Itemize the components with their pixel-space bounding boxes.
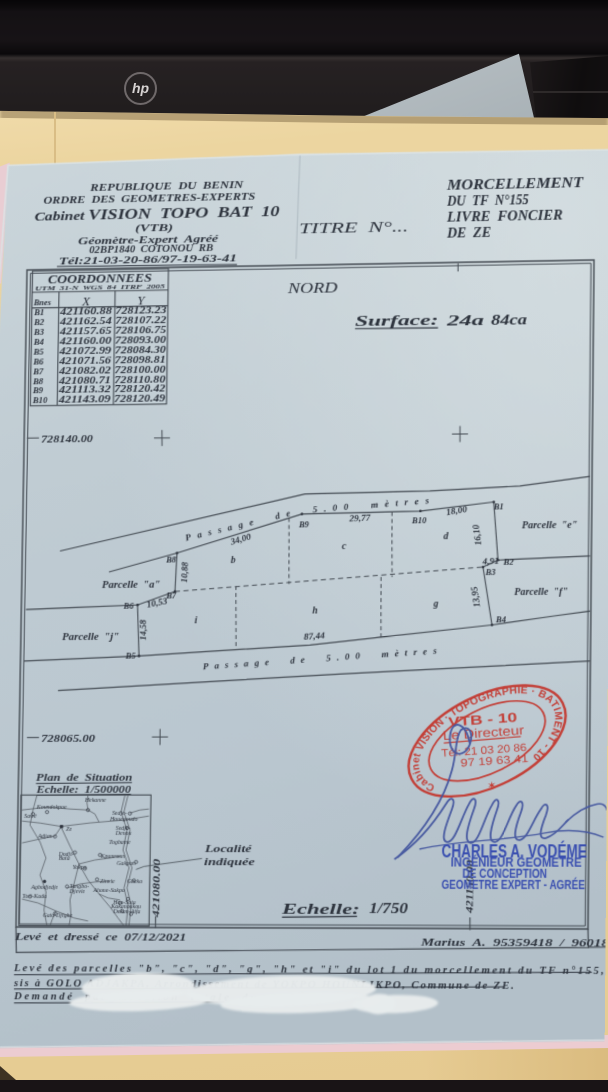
svg-text:Zinvie: Zinvie: [100, 879, 115, 885]
svg-text:B9: B9: [298, 520, 309, 529]
svg-text:indiquée: indiquée: [204, 856, 255, 868]
svg-text:B1: B1: [33, 307, 44, 317]
svg-text:DE ZE: DE ZE: [446, 225, 491, 242]
svg-text:Adjan: Adjan: [37, 833, 52, 839]
svg-text:B6: B6: [32, 356, 44, 366]
svg-text:Agbodjedje: Agbodjedje: [30, 885, 58, 891]
svg-text:Surface:: Surface:: [355, 313, 439, 330]
svg-text:B3: B3: [33, 327, 45, 337]
svg-text:4,91: 4,91: [481, 555, 499, 566]
svg-text:728120.49: 728120.49: [114, 394, 166, 405]
svg-text:Houegoudo: Houegoudo: [109, 816, 138, 822]
svg-text:B8: B8: [32, 376, 44, 386]
svg-text:c: c: [342, 542, 346, 552]
svg-text:B5: B5: [32, 346, 44, 356]
svg-text:10,88: 10,88: [179, 561, 190, 582]
svg-text:Bnes: Bnes: [33, 298, 51, 307]
svg-text:Echelle:: Echelle:: [280, 902, 359, 918]
svg-text:Parcelle "e": Parcelle "e": [522, 520, 578, 531]
svg-text:g: g: [432, 600, 438, 610]
svg-text:Gato-Djigbe: Gato-Djigbe: [43, 913, 73, 919]
svg-text:B10: B10: [411, 516, 426, 525]
svg-text:B1: B1: [493, 502, 504, 511]
svg-text:84ca: 84ca: [491, 313, 527, 329]
svg-text:728140.00: 728140.00: [41, 434, 93, 446]
svg-text:B2: B2: [502, 557, 513, 566]
svg-text:B7: B7: [32, 366, 44, 376]
svg-text:Parcelle "f": Parcelle "f": [514, 587, 568, 598]
svg-text:h: h: [312, 607, 318, 617]
svg-text:24a: 24a: [445, 314, 484, 330]
svg-text:421080.00: 421080.00: [151, 859, 163, 919]
svg-text:Ze: Ze: [66, 826, 72, 832]
svg-text:Sawé: Sawé: [24, 813, 37, 819]
svg-text:Parcelle "j": Parcelle "j": [62, 631, 119, 641]
svg-text:B3: B3: [484, 568, 495, 577]
svg-text:NORD: NORD: [287, 281, 339, 298]
svg-text:B10: B10: [32, 395, 48, 405]
svg-text:14,58: 14,58: [138, 619, 148, 640]
svg-text:Yokpo: Yokpo: [72, 865, 86, 871]
svg-text:421143.09: 421143.09: [57, 394, 111, 405]
svg-text:1/750: 1/750: [369, 901, 408, 917]
svg-text:Localité: Localité: [203, 843, 253, 855]
svg-text:(VTB): (VTB): [135, 223, 173, 235]
svg-text:B5: B5: [125, 651, 136, 660]
svg-text:Dekan-Aifa: Dekan-Aifa: [112, 908, 141, 915]
svg-text:Koundokpoe: Koundokpoe: [36, 805, 67, 811]
svg-text:87,44: 87,44: [304, 630, 326, 642]
svg-text:Levé et dressé ce 07/12/20: Levé et dressé ce 07/12/2021: [14, 932, 187, 944]
svg-text:728065.00: 728065.00: [41, 733, 95, 744]
svg-text:LIVRE FONCIER: LIVRE FONCIER: [446, 207, 563, 225]
svg-text:Denou: Denou: [115, 831, 132, 837]
svg-text:Parcelle "a": Parcelle "a": [102, 579, 160, 590]
svg-text:Gbeko: Gbeko: [127, 879, 143, 885]
svg-text:Hekanne: Hekanne: [84, 797, 107, 803]
svg-text:Echelle: 1/500000: Echelle: 1/500000: [35, 784, 131, 795]
svg-text:Marius A. 95359418 / 96018: Marius A. 95359418 / 9601853: [419, 937, 608, 949]
svg-text:Ahone-Sakpo: Ahone-Sakpo: [92, 889, 125, 895]
svg-text:b: b: [231, 556, 236, 566]
svg-text:✶: ✶: [487, 780, 497, 793]
svg-text:B9: B9: [32, 386, 44, 396]
svg-text:B4: B4: [495, 615, 506, 624]
svg-text:Bata: Bata: [59, 856, 70, 862]
svg-text:B8: B8: [165, 556, 176, 565]
svg-text:B4: B4: [33, 337, 45, 347]
svg-text:DU TF N°155: DU TF N°155: [446, 192, 529, 210]
svg-text:Djevie: Djevie: [68, 889, 85, 895]
svg-text:Togbame: Togbame: [109, 839, 131, 845]
svg-text:Kpanroun: Kpanroun: [100, 854, 125, 860]
svg-text:B2: B2: [33, 317, 45, 327]
svg-text:GEOMETRE EXPERT - AGRÉE: GEOMETRE EXPERT - AGRÉE: [441, 876, 585, 892]
svg-text:B6: B6: [123, 601, 135, 610]
svg-text:TITRE N°...: TITRE N°...: [299, 219, 409, 238]
svg-text:d: d: [444, 532, 449, 542]
svg-text:Tori-Kada: Tori-Kada: [22, 894, 47, 900]
svg-text:Gakpan: Gakpan: [117, 861, 136, 867]
svg-text:29,77: 29,77: [348, 512, 371, 523]
svg-text:MORCELLEMENT: MORCELLEMENT: [446, 175, 585, 194]
